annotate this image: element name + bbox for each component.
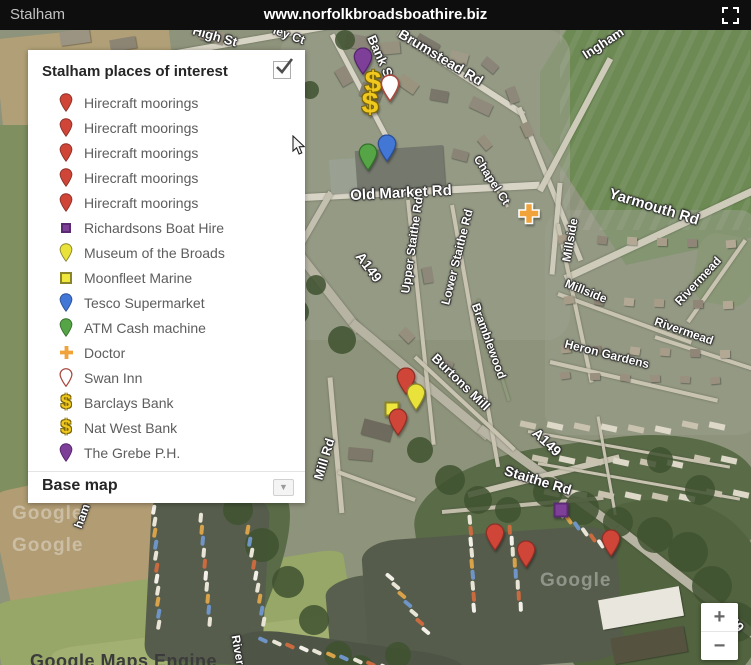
legend-item-museum-of-the-broads[interactable]: Museum of the Broads — [28, 240, 305, 265]
legend-item-moonfleet-marine[interactable]: Moonfleet Marine — [28, 265, 305, 290]
tree — [272, 566, 304, 598]
map-marker-hirecraft-moorings[interactable] — [485, 523, 506, 556]
tree — [385, 642, 411, 665]
building — [590, 373, 600, 380]
legend-item-label: Nat West Bank — [84, 420, 177, 436]
base-map-row[interactable]: Base map ▼ — [28, 471, 305, 503]
tree — [685, 475, 715, 505]
building — [520, 420, 537, 429]
legend-item-label: Tesco Supermarket — [84, 295, 205, 311]
boat — [470, 570, 474, 580]
boat — [511, 547, 515, 557]
boat — [508, 525, 512, 535]
legend-panel: Stalham places of interest Hirecraft moo… — [28, 50, 305, 503]
legend-title: Stalham places of interest — [28, 50, 305, 89]
map-marker-museum-of-broads[interactable] — [406, 383, 427, 416]
checkmark-icon — [273, 56, 295, 76]
pin-icon — [55, 293, 77, 312]
legend-item-list: Hirecraft moorings Hirecraft moorings Hi… — [28, 90, 305, 471]
tree — [668, 532, 708, 572]
legend-item-label: Hirecraft moorings — [84, 95, 198, 111]
road — [337, 470, 415, 502]
mouse-cursor — [292, 135, 307, 156]
legend-item-label: ATM Cash machine — [84, 320, 206, 336]
building — [680, 376, 690, 384]
legend-item-label: Doctor — [84, 345, 125, 361]
boat — [471, 592, 475, 602]
legend-item-label: Richardsons Boat Hire — [84, 220, 224, 236]
pin-icon — [55, 443, 77, 462]
legend-item-label: Hirecraft moorings — [84, 170, 198, 186]
building — [348, 447, 373, 461]
map-marker-hirecraft-moorings[interactable] — [516, 540, 537, 573]
boat — [470, 559, 474, 569]
legend-item-hirecraft-moorings[interactable]: Hirecraft moorings — [28, 165, 305, 190]
legend-item-label: Hirecraft moorings — [84, 145, 198, 161]
dollar-icon: $ — [55, 392, 77, 414]
tree — [407, 437, 433, 463]
google-watermark: Google — [540, 570, 611, 592]
building — [723, 301, 733, 310]
boat — [519, 602, 523, 612]
building — [657, 238, 667, 246]
pin-icon — [55, 318, 77, 337]
legend-item-richardsons-boat-hire[interactable]: Richardsons Boat Hire — [28, 215, 305, 240]
legend-item-hirecraft-moorings[interactable]: Hirecraft moorings — [28, 115, 305, 140]
map-marker-swan-inn[interactable] — [380, 74, 401, 107]
chevron-down-icon[interactable]: ▼ — [273, 479, 294, 496]
building — [563, 295, 574, 304]
legend-item-hirecraft-moorings[interactable]: Hirecraft moorings — [28, 140, 305, 165]
building — [710, 377, 721, 385]
pin-icon — [55, 93, 77, 112]
cross-icon — [55, 344, 77, 361]
zoom-out-button[interactable]: − — [701, 632, 738, 660]
building — [720, 350, 730, 358]
building — [650, 375, 660, 383]
map-app-window: GoogleGoogleGoogleGoogle Maps EngineHigh… — [0, 0, 751, 665]
map-marker-hirecraft-moorings[interactable] — [601, 529, 622, 562]
pin-icon — [55, 118, 77, 137]
legend-item-hirecraft-moorings[interactable]: Hirecraft moorings — [28, 190, 305, 215]
map-marker-richardsons-boat-hire[interactable] — [554, 503, 569, 518]
boat — [468, 515, 472, 525]
legend-item-label: Swan Inn — [84, 370, 142, 386]
legend-item-label: The Grebe P.H. — [84, 445, 180, 461]
zoom-in-button[interactable]: + — [701, 603, 738, 631]
pin-outline-icon — [55, 368, 77, 387]
tree — [435, 465, 465, 495]
building — [597, 235, 608, 244]
legend-item-barclays-bank[interactable]: $Barclays Bank — [28, 390, 305, 415]
pin-icon — [55, 168, 77, 187]
legend-item-hirecraft-moorings[interactable]: Hirecraft moorings — [28, 90, 305, 115]
tree — [328, 326, 356, 354]
layer-checkbox[interactable] — [273, 61, 291, 79]
legend-item-label: Museum of the Broads — [84, 245, 225, 261]
legend-item-nat-west-bank[interactable]: $Nat West Bank — [28, 415, 305, 440]
building — [654, 299, 664, 308]
boat — [516, 580, 520, 590]
boat — [472, 603, 476, 613]
tree — [647, 447, 673, 473]
pin-icon — [55, 243, 77, 262]
header-bar: Stalham www.norfolkbroadsboathire.biz — [0, 0, 751, 30]
building — [687, 239, 697, 247]
building — [560, 371, 571, 379]
boat — [510, 536, 514, 546]
legend-item-the-grebe-p-h-[interactable]: The Grebe P.H. — [28, 440, 305, 465]
building — [624, 297, 635, 306]
legend-item-atm-cash-machine[interactable]: ATM Cash machine — [28, 315, 305, 340]
building — [660, 348, 671, 357]
building — [620, 373, 631, 381]
road-label: Mill Rd — [311, 436, 338, 481]
legend-item-doctor[interactable]: Doctor — [28, 340, 305, 365]
legend-item-label: Barclays Bank — [84, 395, 173, 411]
map-marker-atm-cash-machine[interactable] — [358, 143, 379, 176]
zoom-control: + − — [701, 603, 738, 660]
site-title: www.norfolkbroadsboathire.biz — [0, 0, 751, 30]
dollar-icon: $ — [55, 417, 77, 439]
building — [627, 237, 638, 246]
terrain-patch — [0, 125, 30, 495]
tree — [464, 486, 492, 514]
tree — [299, 605, 329, 635]
map-marker-natwest-bank[interactable]: $ — [362, 87, 379, 121]
boat — [469, 548, 473, 558]
map-marker-doctor[interactable] — [517, 202, 541, 231]
pin-icon — [55, 143, 77, 162]
pin-icon — [55, 193, 77, 212]
square-icon — [55, 223, 77, 233]
tree — [306, 275, 326, 295]
square-icon — [55, 272, 77, 284]
legend-item-label: Hirecraft moorings — [84, 195, 198, 211]
boat — [468, 526, 472, 536]
building — [726, 240, 737, 249]
boat — [469, 537, 473, 547]
attribution-text: Google Maps Engine — [30, 651, 217, 665]
legend-item-label: Hirecraft moorings — [84, 120, 198, 136]
legend-item-tesco-supermarket[interactable]: Tesco Supermarket — [28, 290, 305, 315]
boat — [517, 591, 521, 601]
map-marker-tesco-supermarket[interactable] — [377, 134, 398, 167]
tree — [495, 497, 521, 523]
google-watermark: Google — [12, 535, 83, 557]
base-map-label: Base map — [42, 477, 118, 495]
building — [693, 300, 703, 308]
boat — [471, 581, 475, 591]
map-marker-hirecraft-moorings[interactable] — [388, 408, 409, 441]
fullscreen-icon[interactable] — [722, 7, 739, 24]
legend-item-swan-inn[interactable]: Swan Inn — [28, 365, 305, 390]
legend-item-label: Moonfleet Marine — [84, 270, 192, 286]
building — [690, 349, 700, 357]
